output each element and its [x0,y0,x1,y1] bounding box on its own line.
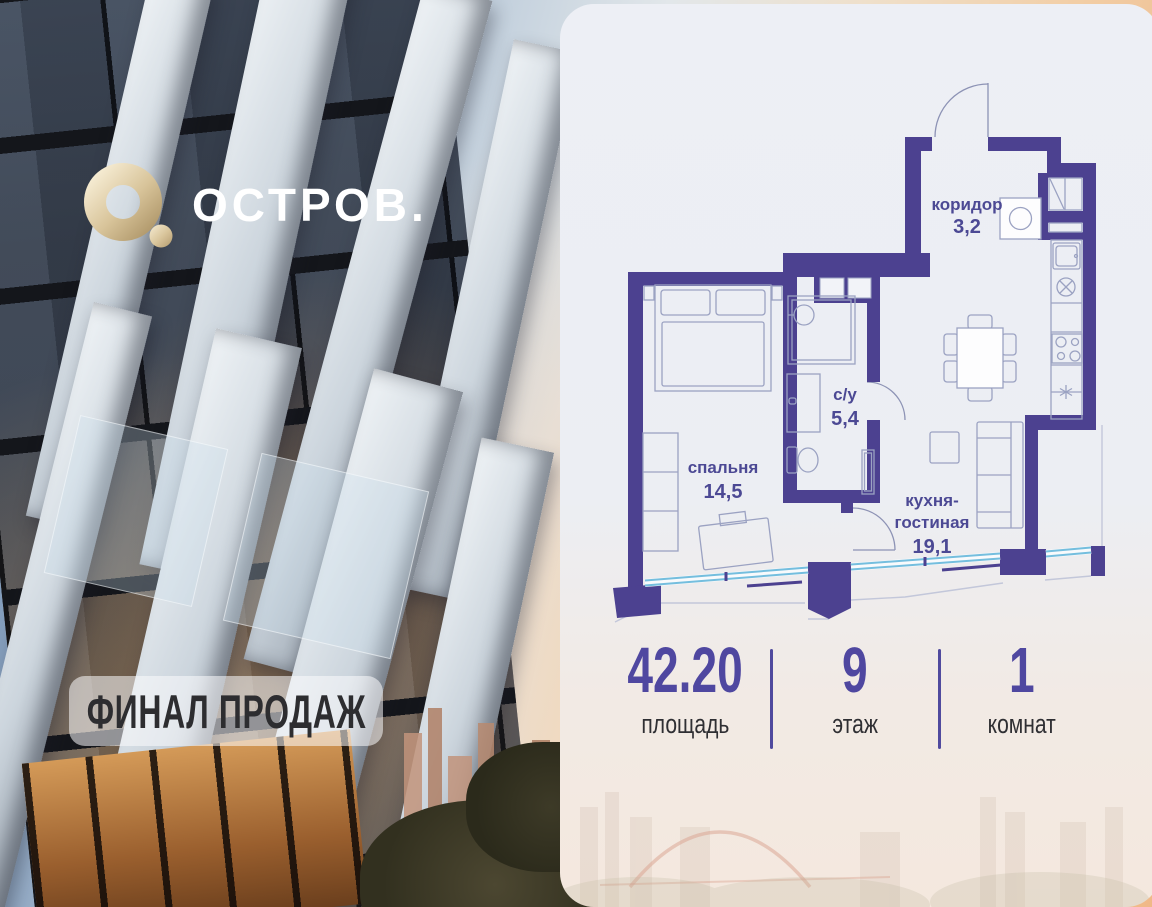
wardrobe [643,433,678,551]
room-label-bathroom: с/у 5,4 [831,385,860,430]
area-value: 42.20 [627,641,742,699]
nightstand [772,286,782,300]
sales-status-badge: ФИНАЛ ПРОДАЖ [69,676,383,746]
logo-text: ОСТРОВ. [192,178,428,232]
sales-status-label: ФИНАЛ ПРОДАЖ [86,684,365,739]
sink [1053,243,1080,269]
room-label-bedroom: спальня 14,5 [688,458,759,503]
bathroom-door-icon [867,382,905,420]
coffee-table [930,432,959,463]
svg-text:гостиная: гостиная [895,513,970,532]
radiator [942,565,1001,570]
closet [1049,178,1082,232]
bedroom-door-icon [853,508,895,550]
duct-shaft [848,278,871,298]
nightstand [644,286,654,300]
sofa [977,422,1023,528]
svg-text:спальня: спальня [688,458,759,477]
svg-text:коридор: коридор [931,195,1002,214]
svg-text:кухня-: кухня- [905,491,958,510]
stove [1052,334,1082,363]
apartment-card[interactable]: коридор 3,2 с/у 5,4 спальня 14,5 кухня- … [560,4,1152,907]
entrance-door-icon [935,83,988,137]
rooms-label: комнат [988,709,1056,740]
logo-o-icon [80,156,180,256]
real-estate-listing: ОСТРОВ. ФИНАЛ ПРОДАЖ [0,0,1152,907]
washing-machine [1000,198,1041,239]
floor-label: этаж [832,709,877,740]
svg-text:19,1: 19,1 [913,536,952,558]
brand-logo: ОСТРОВ. [80,156,550,266]
radiator [747,582,802,586]
duct-shaft [820,278,844,298]
floor-value: 9 [842,641,868,699]
faint-city-backdrop [560,737,1152,907]
shower [788,296,855,364]
stat-rooms: 1 комнат [912,641,1132,740]
svg-text:14,5: 14,5 [704,481,743,503]
svg-text:5,4: 5,4 [831,408,860,430]
bed [655,285,771,391]
desk [697,509,773,570]
room-label-corridor: коридор 3,2 [931,195,1002,238]
dining-set [944,315,1016,401]
room-label-kitchen-living: кухня- гостиная 19,1 [895,491,970,558]
svg-text:3,2: 3,2 [953,216,981,238]
svg-text:с/у: с/у [833,385,857,404]
extractor-symbol [1057,278,1075,296]
floor-plan: коридор 3,2 с/у 5,4 спальня 14,5 кухня- … [605,70,1110,632]
rooms-value: 1 [1009,641,1035,699]
area-label: площадь [641,709,729,740]
